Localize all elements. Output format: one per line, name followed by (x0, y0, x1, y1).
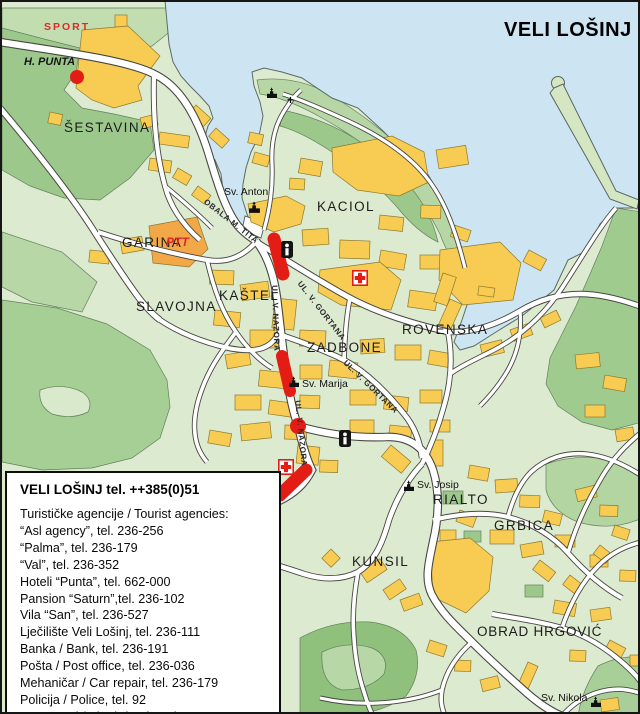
info-box-line: Banka / Bank, tel. 236-191 (20, 641, 275, 658)
info-box-line: Mehaničar / Car repair, tel. 236-179 (20, 675, 275, 692)
info-box-line: Pansion “Saturn”,tel. 236-102 (20, 591, 275, 608)
page-title: VELI LOŠINJ (504, 20, 632, 40)
info-box-title: VELI LOŠINJ tel. ++385(0)51 (20, 482, 275, 497)
poi-label-ptt: PTT (166, 236, 189, 248)
map-canvas: + VELI LOŠINJ SPORT H. PUNTA ŠESTAVINA S… (0, 0, 640, 714)
info-icon-harbor (281, 241, 293, 258)
info-box-line: “Palma”, tel. 236-179 (20, 540, 275, 557)
district-label-grbica: GRBICA (494, 519, 554, 533)
church-label-sv-anton: Sv. Anton (224, 187, 268, 198)
district-label-kaciol: KACIOL (317, 200, 375, 214)
red-dot-marker-punta (70, 70, 84, 84)
info-box-line: Lječilište Veli Lošinj, tel. 236-111 (20, 624, 275, 641)
poi-label-h-punta: H. PUNTA (24, 57, 75, 68)
district-label-obrad-hrgovic: OBRAD HRGOVIĆ (477, 625, 602, 639)
district-label-rovenska: ROVENSKA (402, 323, 488, 337)
church-label-sv-marija: Sv. Marija (302, 379, 348, 390)
cemetery-cross-icon: + (287, 93, 294, 107)
pharmacy-cross-icon-north (353, 271, 367, 285)
route-segment-2 (282, 356, 290, 391)
info-box-line: Hoteli “Punta”, tel. 662-000 (20, 574, 275, 591)
street-label-nazora-1: UL. V. NAZORA (270, 285, 280, 351)
info-box-line: “Asl agency”, tel. 236-256 (20, 523, 275, 540)
info-box-line: Vila “San”, tel. 236-527 (20, 607, 275, 624)
info-box: VELI LOŠINJ tel. ++385(0)51 Turističke a… (5, 471, 281, 714)
district-label-rialto: RIALTO (433, 493, 489, 507)
district-label-sestavina: ŠESTAVINA (64, 121, 150, 135)
district-label-zadbone: ZADBONE (307, 341, 382, 355)
info-icon-south (339, 430, 351, 447)
poi-label-sport: SPORT (44, 22, 90, 33)
district-label-kunsil: KUNSIL (352, 555, 409, 569)
info-box-line: Vatrogasci / Fire brigade, tel. 93 (20, 709, 275, 714)
district-label-slavojna: SLAVOJNA (136, 300, 217, 314)
church-label-sv-nikola: Sv. Nikola (541, 693, 588, 704)
info-box-line: Policija / Police, tel. 92 (20, 692, 275, 709)
info-box-line: Turističke agencije / Tourist agencies: (20, 506, 275, 523)
church-label-sv-josip: Sv. Josip (417, 480, 459, 491)
info-box-line: “Val”, tel. 236-352 (20, 557, 275, 574)
info-box-line: Pošta / Post office, tel. 236-036 (20, 658, 275, 675)
